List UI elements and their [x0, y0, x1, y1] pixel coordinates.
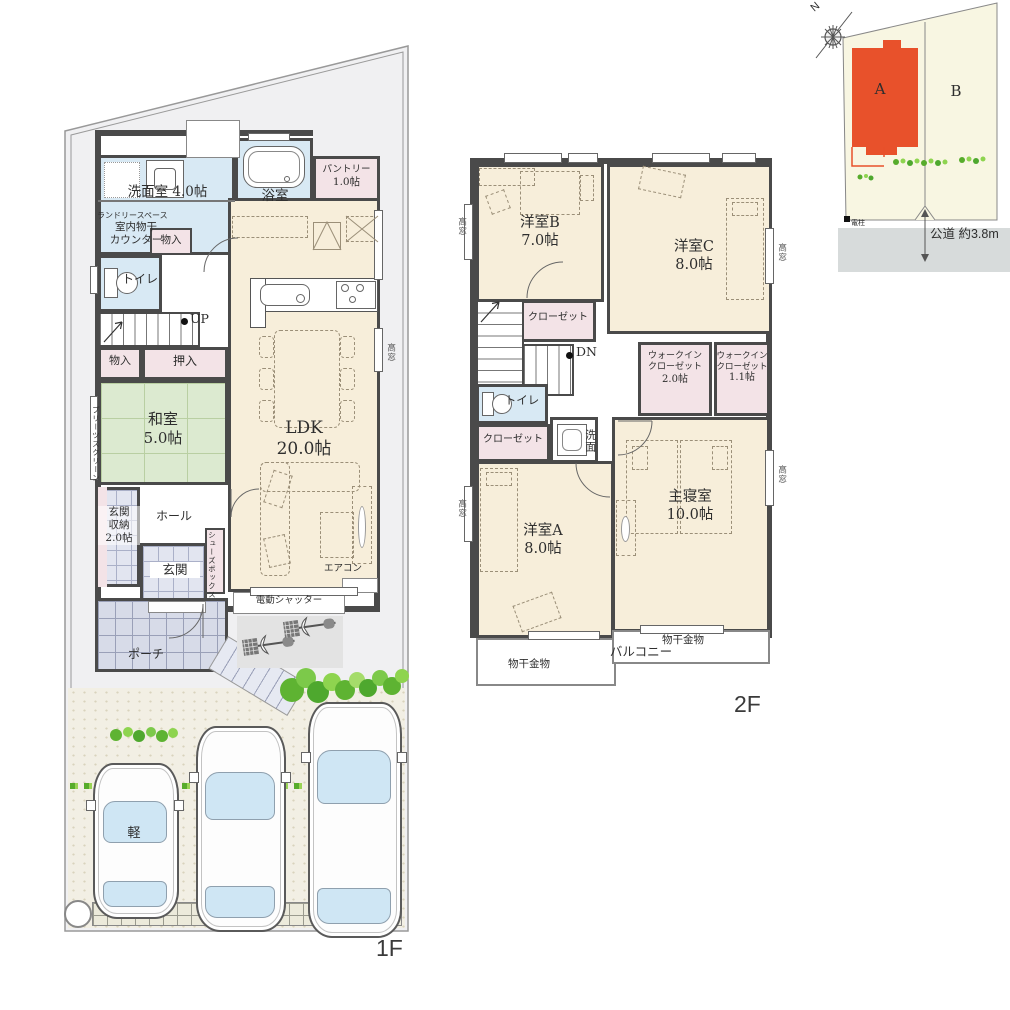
room-label-toilet-2f: トイレ [500, 393, 544, 407]
room-label-yokushitsu: 浴室 [240, 188, 310, 205]
tv-icon [358, 506, 366, 548]
pillow-icon [580, 175, 594, 201]
stairs-2f [476, 300, 524, 396]
road-width-arrow [921, 209, 929, 262]
mirror-icon [174, 800, 184, 811]
room-label-pantry: パントリー 1.0帖 [313, 164, 380, 189]
room-label-genkan-storage: 玄関 収納 2.0帖 [98, 506, 140, 545]
window [652, 153, 710, 163]
pillow-icon [712, 446, 728, 470]
counter-row [232, 216, 308, 238]
room-label-hall: ホール [142, 509, 206, 524]
mirror-icon [281, 772, 291, 783]
utility-pole-icon [844, 216, 850, 222]
lot-boundary [843, 3, 997, 220]
stove-burner-1 [341, 284, 349, 292]
manhole-icon [64, 900, 92, 928]
takamado-label-2f: 高窓 [456, 488, 467, 528]
chair-icon [340, 336, 355, 358]
window [640, 625, 724, 634]
north-label: N [809, 0, 824, 16]
bay-counter [186, 120, 240, 158]
mirror-icon [397, 752, 407, 763]
pleats-screen-label: プリーツスクリーン [91, 398, 100, 490]
site-hedge [858, 157, 986, 181]
mirror-icon [301, 752, 311, 763]
floor-label-1f: 1F [376, 934, 403, 963]
chair-icon [340, 368, 355, 390]
stove-burner-3 [349, 296, 356, 303]
takamado-label-2f: 高窓 [776, 454, 787, 494]
room-label-c: 洋室C 8.0帖 [650, 238, 738, 274]
dn-label: DN [576, 344, 597, 360]
rear-window [205, 886, 275, 918]
pillow-icon [632, 446, 648, 470]
floorplan-canvas: 洗面室 4.0帖 ランドリースペース 室内物干 カウンター 物入 浴室 パントリ… [0, 0, 1010, 1010]
mirror-icon [86, 800, 96, 811]
window [765, 450, 774, 506]
windshield [205, 772, 275, 820]
window [248, 133, 290, 141]
mirror-icon [189, 772, 199, 783]
rear-window [103, 881, 167, 907]
aircon-label: エアコン [298, 563, 362, 575]
porch-label: ポーチ [110, 647, 182, 662]
coffee-table-icon [320, 512, 354, 558]
genkan-step [148, 601, 206, 613]
stove-burner-2 [356, 284, 364, 292]
lot-notch [915, 206, 935, 220]
sink-drain-icon [296, 294, 305, 303]
window [504, 153, 562, 163]
pillow-icon [486, 472, 512, 486]
car-icon-large [308, 702, 402, 938]
desk-icon [479, 168, 535, 186]
dn-dot [566, 352, 573, 359]
window [722, 153, 756, 163]
room-label-toilet-1f: トイレ [118, 272, 162, 287]
bicycle-area [237, 616, 343, 668]
dining-table-icon [274, 330, 340, 428]
takamado-label-2f: 高窓 [456, 206, 467, 246]
window [765, 228, 774, 284]
window [528, 631, 600, 640]
closet-top-label: クローゼット [520, 312, 596, 325]
lot-a-label: A [868, 80, 892, 99]
window [568, 153, 598, 163]
road-label: 公道 約3.8m [930, 227, 999, 243]
compass-icon [816, 12, 852, 58]
wic11-label: ウォークイン クローゼット 1.1帖 [714, 351, 770, 385]
cupboard-icon [313, 222, 341, 250]
senmen-label: 洗面 [583, 420, 597, 462]
room-label-monoire-b: 物入 [98, 354, 142, 368]
building-a-steps [852, 147, 884, 166]
closet-mid-label: クローゼット [476, 434, 550, 447]
balcony-label: バルコニー [598, 644, 684, 660]
room-label-a: 洋室A 8.0帖 [498, 522, 588, 558]
room-label-master: 主寝室 10.0帖 [640, 488, 740, 524]
bathtub-inner [248, 151, 300, 183]
monohoshi-left-label: 物干金物 [494, 658, 564, 671]
room-label-b: 洋室B 7.0帖 [500, 214, 580, 250]
up-label: UP [190, 311, 209, 327]
wic2-label: ウォークイン クローゼット 2.0帖 [638, 351, 712, 386]
room-label-monoire-a: 物入 [150, 234, 192, 247]
washbasin-bowl [562, 429, 582, 451]
corner-patch [313, 124, 385, 157]
bath-drain-icon [284, 176, 290, 182]
takamado-label-1f: 高窓 [385, 332, 396, 372]
window [374, 328, 383, 372]
room-label-genkan: 玄関 [150, 562, 200, 578]
window [90, 266, 98, 294]
car-icon-mid [196, 726, 286, 932]
lot-b-label: B [944, 82, 968, 101]
room-label-senmenshitsu: 洗面室 4.0帖 [100, 184, 235, 201]
up-dot [181, 318, 188, 325]
room-label-washitsu: 和室 5.0帖 [98, 410, 228, 448]
floor-label-2f: 2F [734, 690, 761, 719]
window [374, 210, 383, 280]
pillow-icon [732, 202, 758, 216]
chair-icon [259, 368, 274, 390]
chair-icon [259, 336, 274, 358]
windshield [317, 750, 391, 804]
laundry-space-label: ランドリースペース [97, 211, 187, 221]
kei-car-label: 軽 [100, 826, 168, 842]
rear-window [317, 888, 391, 924]
takamado-label-2f: 高窓 [776, 232, 787, 272]
shoes-box-label: シューズボックス [207, 531, 216, 593]
utility-pole-label: 電柱 [851, 220, 865, 229]
room-label-oshiire: 押入 [142, 354, 228, 369]
shutter-label: 電動シャッター [233, 595, 345, 607]
dresser-mirror [621, 516, 630, 542]
room-label-ldk: LDK 20.0帖 [228, 418, 380, 461]
